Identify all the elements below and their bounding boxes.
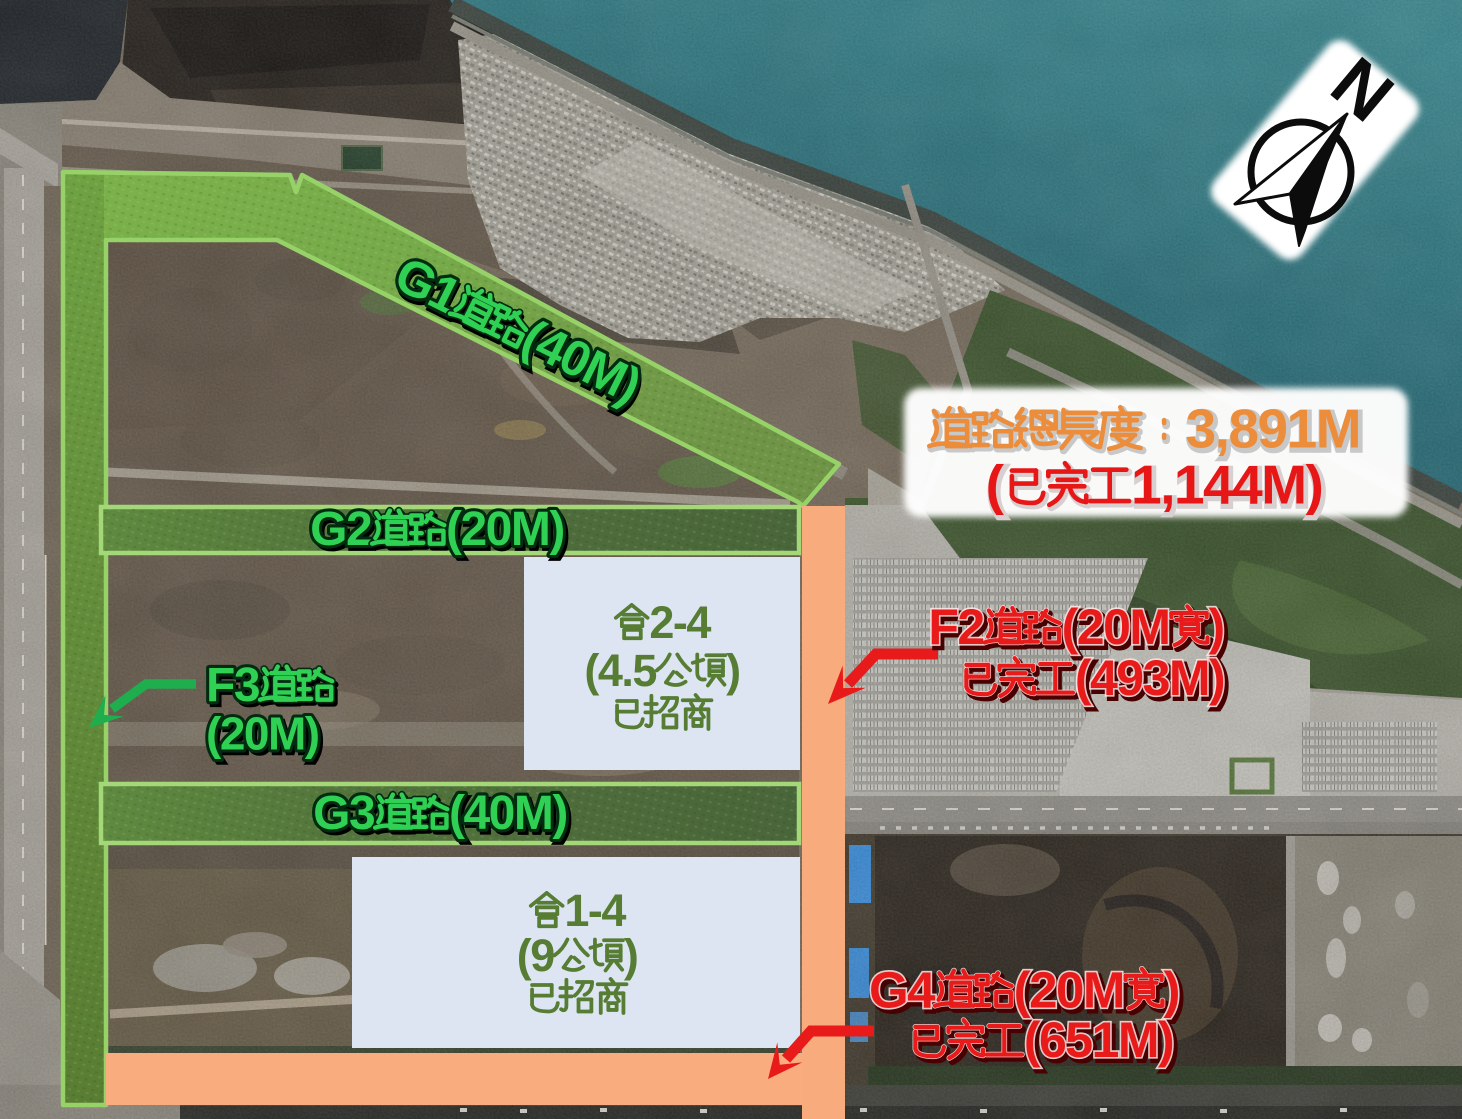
svg-text:(4.5: (4.5 — [584, 645, 656, 696]
svg-text:(40M): (40M) — [449, 787, 567, 840]
svg-text:(9: (9 — [517, 930, 554, 981]
svg-text:(493M): (493M) — [1075, 650, 1224, 706]
svg-text:(: ( — [986, 454, 1005, 516]
svg-text:(651M): (651M) — [1024, 1012, 1173, 1068]
svg-text:1-4: 1-4 — [564, 885, 626, 936]
svg-text:2-4: 2-4 — [649, 597, 711, 648]
svg-text:(20M): (20M) — [446, 503, 564, 556]
svg-text:G4: G4 — [869, 961, 936, 1018]
svg-text:F2: F2 — [928, 599, 983, 655]
svg-text:(20M: (20M — [1062, 599, 1170, 655]
svg-text:): ) — [1209, 599, 1224, 655]
svg-text:(20M: (20M — [1014, 961, 1124, 1018]
svg-text:): ) — [624, 930, 638, 981]
svg-text:(20M): (20M) — [206, 708, 319, 760]
svg-text:3,891M: 3,891M — [1186, 398, 1360, 460]
svg-text:1,144M): 1,144M) — [1131, 454, 1322, 516]
svg-text:G3: G3 — [313, 787, 374, 840]
svg-text:): ) — [1164, 961, 1179, 1018]
svg-text:G2: G2 — [310, 503, 371, 556]
svg-text:F3: F3 — [206, 659, 259, 712]
svg-text:): ) — [726, 645, 740, 696]
